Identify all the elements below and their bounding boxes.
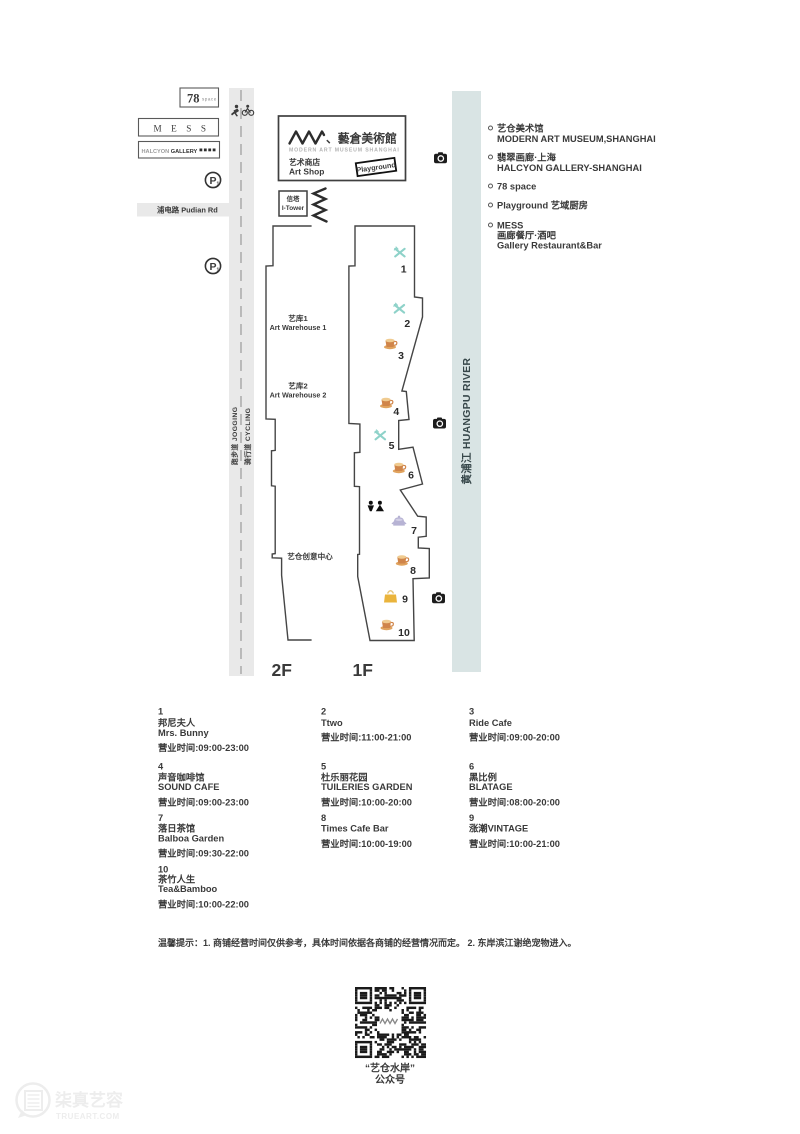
svg-text:TUILERIES GARDEN: TUILERIES GARDEN	[321, 782, 413, 792]
svg-text:1: 1	[158, 707, 163, 717]
svg-text:Art Shop: Art Shop	[289, 166, 324, 176]
svg-text:Art Warehouse 2: Art Warehouse 2	[270, 391, 327, 400]
svg-text:“艺仓水岸”: “艺仓水岸”	[365, 1062, 415, 1075]
svg-text:2: 2	[404, 318, 410, 330]
svg-text:HALCYON GALLERY-SHANGHAI: HALCYON GALLERY-SHANGHAI	[497, 163, 642, 173]
svg-text:5: 5	[389, 440, 395, 452]
svg-text:7: 7	[411, 525, 417, 537]
svg-text:落日茶馆: 落日茶馆	[158, 823, 195, 834]
svg-text:艺库1: 艺库1	[288, 313, 308, 323]
svg-text:Ttwo: Ttwo	[321, 718, 343, 728]
svg-text:2: 2	[321, 707, 326, 717]
svg-text:BLATAGE: BLATAGE	[469, 782, 513, 792]
svg-text:Ride Cafe: Ride Cafe	[469, 718, 512, 728]
svg-text:骑行道 CYCLING: 骑行道 CYCLING	[243, 408, 252, 465]
svg-text:公众号: 公众号	[375, 1073, 405, 1086]
svg-text:Art Warehouse 1: Art Warehouse 1	[270, 323, 327, 332]
svg-text:SOUND CAFE: SOUND CAFE	[158, 782, 219, 792]
svg-text:营业时间:10:00-20:00: 营业时间:10:00-20:00	[321, 797, 412, 808]
svg-text:3: 3	[469, 707, 474, 717]
svg-text:Balboa Garden: Balboa Garden	[158, 834, 224, 844]
svg-text:MESS: MESS	[154, 123, 216, 133]
svg-text:艺仓创意中心: 艺仓创意中心	[287, 551, 333, 561]
svg-text:78 space: 78 space	[497, 182, 536, 192]
svg-text:I-Tower: I-Tower	[282, 205, 305, 212]
svg-text:MODERN ART MUSEUM SHANGHAI: MODERN ART MUSEUM SHANGHAI	[289, 148, 400, 154]
svg-text:HALCYON GALLERY: HALCYON GALLERY	[142, 149, 198, 155]
svg-text:营业时间:09:00-20:00: 营业时间:09:00-20:00	[469, 732, 560, 743]
svg-text:MESS: MESS	[497, 221, 523, 231]
svg-text:温馨提示：1. 商铺经营时间仅供参考，具体时间依据各商铺的经: 温馨提示：1. 商铺经营时间仅供参考，具体时间依据各商铺的经营情况而定。 2. …	[158, 937, 577, 948]
svg-text:1F: 1F	[353, 660, 374, 680]
svg-text:78: 78	[187, 92, 200, 106]
svg-text:1: 1	[401, 264, 407, 276]
svg-text:跑步道 JOGGING: 跑步道 JOGGING	[230, 407, 239, 465]
svg-text:Gallery Restaurant&Bar: Gallery Restaurant&Bar	[497, 241, 602, 251]
svg-text:茶竹人生: 茶竹人生	[157, 874, 196, 885]
svg-text:营业时间:08:00-20:00: 营业时间:08:00-20:00	[469, 797, 560, 808]
svg-text:Tea&Bamboo: Tea&Bamboo	[158, 884, 218, 894]
svg-text:声音咖啡馆: 声音咖啡馆	[157, 771, 205, 782]
svg-text:营业时间:09:00-23:00: 营业时间:09:00-23:00	[158, 797, 249, 808]
svg-text:P: P	[210, 261, 217, 273]
svg-text:6: 6	[469, 762, 474, 772]
svg-text:翡翠画廊·上海: 翡翠画廊·上海	[497, 152, 557, 163]
svg-text:柒真艺容: 柒真艺容	[55, 1090, 123, 1110]
svg-text:MODERN ART MUSEUM,SHANGHAI: MODERN ART MUSEUM,SHANGHAI	[497, 134, 656, 144]
svg-text:信塔: 信塔	[287, 194, 300, 203]
svg-text:营业时间:11:00-21:00: 营业时间:11:00-21:00	[321, 732, 411, 743]
svg-text:画廊餐厅·酒吧: 画廊餐厅·酒吧	[497, 230, 557, 241]
svg-text:营业时间:10:00-22:00: 营业时间:10:00-22:00	[158, 899, 249, 910]
svg-text:营业时间:10:00-19:00: 营业时间:10:00-19:00	[321, 838, 412, 849]
svg-text:10: 10	[158, 865, 168, 875]
svg-text:4: 4	[393, 406, 399, 418]
svg-text:艺仓美术馆: 艺仓美术馆	[497, 123, 544, 134]
svg-text:6: 6	[408, 470, 414, 482]
svg-text:营业时间:09:30-22:00: 营业时间:09:30-22:00	[158, 848, 249, 859]
svg-text:P: P	[210, 175, 217, 187]
svg-text:1: 1	[217, 182, 220, 188]
svg-text:浦电路 Pudian Rd: 浦电路 Pudian Rd	[157, 206, 218, 215]
svg-text:TRUEART.COM: TRUEART.COM	[56, 1112, 120, 1121]
svg-text:4: 4	[158, 762, 164, 772]
svg-text:黄浦江 HUANGPU RIVER: 黄浦江 HUANGPU RIVER	[460, 358, 473, 485]
svg-text:9: 9	[469, 813, 474, 823]
svg-text:Playground 艺域厨房: Playground 艺域厨房	[497, 200, 588, 211]
svg-text:涨潮VINTAGE: 涨潮VINTAGE	[469, 823, 528, 834]
svg-text:7: 7	[158, 813, 163, 823]
svg-text:艺库2: 艺库2	[288, 381, 307, 391]
svg-text:9: 9	[402, 594, 408, 606]
svg-text:3: 3	[398, 350, 404, 362]
svg-text:1: 1	[217, 268, 220, 274]
svg-text:、藝倉美術館: 、藝倉美術館	[326, 132, 397, 146]
svg-text:8: 8	[321, 813, 326, 823]
svg-text:2F: 2F	[272, 660, 293, 680]
svg-text:Times Cafe Bar: Times Cafe Bar	[321, 824, 389, 834]
svg-text:8: 8	[410, 565, 416, 577]
svg-text:营业时间:09:00-23:00: 营业时间:09:00-23:00	[158, 742, 249, 753]
svg-text:Mrs. Bunny: Mrs. Bunny	[158, 728, 209, 738]
svg-text:邦尼夫人: 邦尼夫人	[158, 717, 196, 728]
svg-text:杜乐丽花园: 杜乐丽花园	[321, 771, 368, 782]
svg-text:space: space	[202, 97, 217, 102]
svg-text:黑比例: 黑比例	[469, 771, 497, 782]
svg-text:5: 5	[321, 762, 326, 772]
svg-text:10: 10	[398, 627, 410, 639]
svg-text:营业时间:10:00-21:00: 营业时间:10:00-21:00	[469, 838, 560, 849]
